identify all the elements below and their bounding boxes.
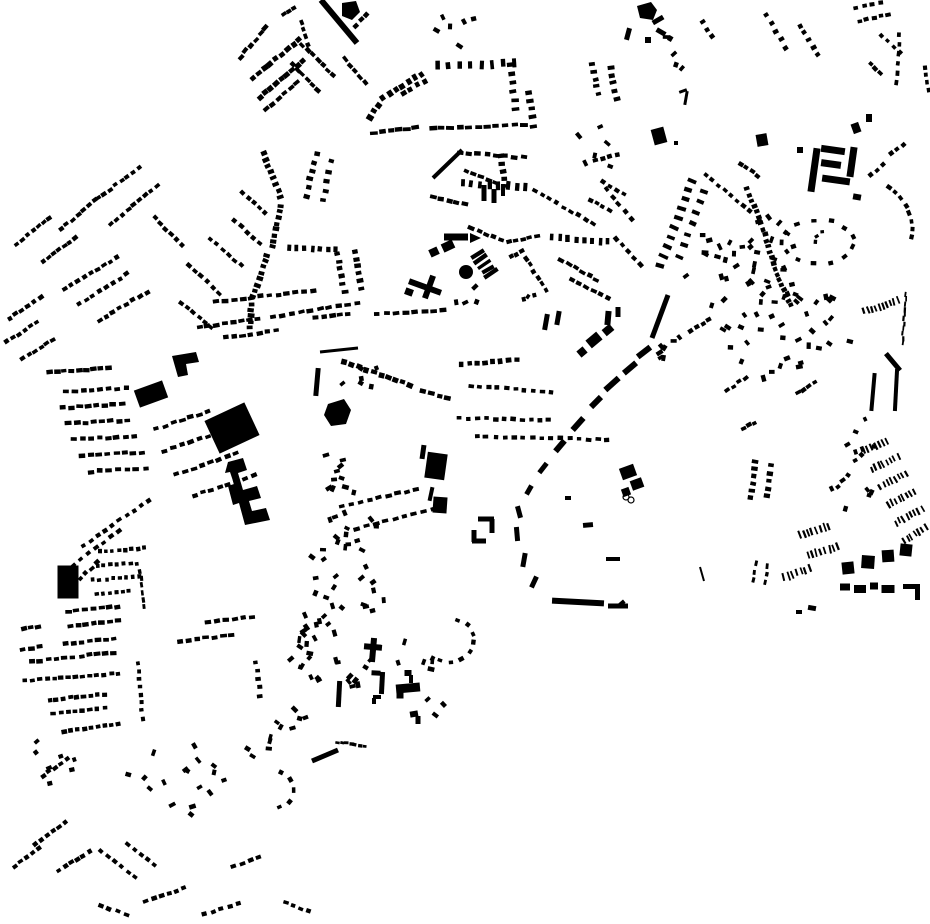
landmark-building — [882, 550, 895, 563]
landmark-building — [397, 692, 404, 699]
building — [819, 525, 823, 533]
building — [238, 223, 245, 230]
building — [201, 911, 207, 917]
building — [302, 715, 309, 721]
building — [684, 187, 693, 193]
building — [74, 278, 81, 285]
building — [909, 219, 913, 224]
building — [355, 271, 361, 276]
building — [131, 508, 137, 514]
building — [673, 62, 679, 68]
building — [621, 191, 627, 196]
building — [474, 361, 479, 366]
building — [80, 695, 86, 699]
building — [250, 235, 257, 242]
building — [498, 237, 504, 242]
building — [374, 312, 380, 316]
building — [358, 286, 364, 291]
building — [587, 197, 593, 203]
building — [823, 547, 827, 555]
building — [448, 24, 452, 30]
building — [497, 153, 504, 158]
building — [508, 71, 515, 76]
building — [246, 195, 252, 201]
building — [574, 237, 578, 243]
building — [49, 337, 56, 343]
building — [136, 661, 140, 665]
building — [600, 156, 606, 162]
building — [891, 44, 896, 50]
building — [199, 462, 206, 468]
building — [375, 495, 382, 501]
building — [548, 436, 553, 440]
building — [614, 187, 621, 193]
landmark-building — [444, 234, 468, 241]
building — [896, 296, 900, 304]
building — [124, 385, 129, 390]
building — [453, 200, 460, 206]
building — [557, 257, 565, 264]
building — [321, 613, 328, 619]
building — [85, 550, 91, 556]
building — [607, 65, 614, 70]
building — [111, 576, 115, 580]
building — [34, 624, 41, 629]
building — [353, 526, 360, 532]
building — [446, 198, 453, 204]
building — [746, 193, 752, 198]
building — [63, 390, 69, 394]
building — [119, 212, 125, 218]
building — [253, 282, 261, 288]
building — [137, 669, 141, 673]
building — [97, 468, 103, 473]
building — [783, 355, 790, 361]
building — [895, 70, 899, 76]
building — [760, 227, 766, 233]
building — [679, 65, 685, 72]
building — [227, 904, 233, 909]
building — [345, 678, 352, 685]
building — [100, 191, 107, 198]
building — [22, 327, 28, 333]
building — [196, 784, 203, 790]
building — [144, 289, 151, 295]
building — [31, 299, 37, 305]
building — [187, 439, 195, 446]
landmark-building — [622, 361, 638, 376]
building — [694, 324, 700, 330]
building — [736, 378, 742, 384]
building — [264, 163, 271, 169]
building — [79, 654, 85, 659]
building — [888, 300, 892, 306]
building — [239, 861, 246, 866]
building — [311, 160, 317, 166]
building — [743, 164, 749, 170]
building — [65, 675, 70, 679]
landmark-building — [636, 345, 652, 360]
building — [249, 303, 255, 307]
building — [43, 340, 50, 346]
landmark-building — [899, 543, 912, 556]
building — [886, 184, 893, 191]
building — [604, 140, 611, 147]
building — [628, 216, 635, 223]
building — [579, 269, 586, 275]
building — [569, 277, 576, 283]
building — [888, 150, 895, 157]
building — [379, 94, 386, 101]
building — [339, 380, 345, 386]
building — [892, 298, 896, 306]
building — [299, 42, 306, 49]
building — [336, 266, 342, 271]
building — [267, 169, 274, 175]
building — [310, 288, 317, 293]
building — [477, 174, 484, 179]
building — [71, 234, 78, 241]
building — [189, 803, 197, 809]
building — [10, 335, 16, 341]
building — [232, 450, 239, 455]
building — [722, 187, 728, 193]
building — [894, 520, 898, 527]
building — [153, 426, 159, 431]
building — [250, 472, 257, 478]
building — [68, 695, 73, 699]
building — [669, 224, 679, 232]
landmark-building — [854, 585, 866, 593]
building — [515, 183, 520, 191]
building — [115, 528, 122, 535]
building — [751, 267, 756, 274]
building — [514, 387, 519, 390]
landmark-building — [602, 324, 615, 337]
building — [763, 238, 769, 244]
building — [568, 436, 573, 440]
building — [352, 249, 358, 254]
building — [124, 575, 128, 579]
building — [309, 82, 315, 88]
building — [681, 196, 690, 203]
building — [471, 16, 477, 22]
landmark-building — [619, 464, 637, 480]
building — [123, 435, 129, 439]
building — [76, 301, 82, 307]
building — [89, 388, 94, 393]
building — [255, 855, 261, 860]
building — [105, 365, 112, 370]
landmark-building — [840, 584, 850, 591]
landmark-building — [808, 605, 817, 611]
building — [514, 357, 519, 361]
building — [347, 62, 354, 69]
building — [765, 563, 768, 569]
building — [703, 172, 709, 178]
building — [94, 592, 99, 596]
building — [605, 295, 612, 301]
building — [312, 635, 318, 642]
building — [36, 644, 42, 649]
building — [192, 493, 199, 499]
building — [190, 466, 197, 471]
building — [44, 832, 50, 838]
building — [784, 249, 790, 255]
landmark-building — [630, 477, 645, 491]
building — [667, 235, 676, 241]
building — [912, 509, 917, 516]
landmark-building — [585, 332, 602, 349]
building — [36, 659, 43, 664]
building — [863, 16, 869, 21]
building — [168, 231, 175, 238]
building — [798, 360, 804, 365]
building — [110, 280, 116, 286]
building — [430, 194, 437, 199]
building — [878, 0, 883, 5]
building — [196, 436, 203, 442]
building — [455, 42, 463, 49]
building — [363, 745, 367, 748]
building — [607, 164, 613, 170]
building — [142, 545, 146, 550]
building — [239, 334, 246, 338]
building — [325, 170, 332, 175]
building — [95, 637, 102, 642]
building — [267, 738, 272, 745]
building — [320, 548, 326, 552]
building — [276, 188, 282, 194]
building — [80, 207, 87, 214]
building — [754, 173, 761, 179]
building — [382, 518, 389, 523]
building — [765, 486, 772, 491]
building — [168, 802, 176, 809]
building — [424, 696, 431, 703]
landmark-building — [603, 376, 620, 393]
building — [411, 73, 418, 81]
building — [62, 641, 68, 646]
landmark-building — [501, 184, 505, 196]
building — [141, 716, 146, 721]
building — [61, 243, 68, 249]
building — [462, 300, 469, 306]
building — [810, 44, 817, 50]
building — [58, 675, 64, 679]
building — [768, 313, 775, 319]
building — [590, 238, 594, 244]
building — [97, 578, 102, 582]
building — [378, 372, 385, 379]
building — [747, 495, 753, 500]
building — [50, 828, 56, 834]
building — [546, 418, 551, 422]
building — [772, 29, 779, 35]
building — [119, 401, 126, 406]
building — [606, 238, 610, 244]
building — [272, 226, 279, 231]
building — [575, 132, 583, 140]
building — [108, 591, 112, 595]
building — [631, 255, 637, 261]
building — [353, 257, 360, 262]
building — [308, 553, 316, 560]
building — [130, 201, 137, 208]
landmark-building — [416, 716, 421, 724]
building — [477, 385, 482, 389]
building — [116, 305, 122, 311]
building — [89, 725, 94, 729]
landmark-building — [604, 311, 611, 325]
building — [520, 436, 525, 440]
building — [197, 325, 203, 330]
building — [205, 434, 211, 439]
building — [273, 328, 279, 332]
building — [795, 257, 801, 262]
landmark-building — [645, 37, 651, 43]
building — [216, 290, 222, 296]
building — [69, 767, 75, 772]
building — [82, 726, 88, 731]
building — [124, 419, 130, 423]
building — [797, 530, 802, 538]
building — [530, 124, 538, 129]
building — [272, 79, 280, 87]
building — [490, 359, 495, 365]
landmark-building — [490, 519, 495, 533]
building — [108, 259, 114, 265]
building — [896, 51, 900, 57]
building — [818, 548, 822, 555]
building — [540, 436, 544, 440]
building — [845, 472, 851, 478]
building — [443, 395, 451, 401]
building — [231, 217, 237, 223]
building — [609, 80, 617, 85]
building — [19, 647, 25, 652]
building — [682, 273, 689, 279]
building — [76, 404, 83, 408]
building — [88, 538, 94, 544]
building — [808, 327, 816, 334]
building — [404, 489, 411, 494]
building — [539, 280, 545, 286]
building — [595, 437, 601, 441]
irregular-building — [172, 352, 199, 377]
building — [83, 421, 89, 425]
building — [297, 636, 301, 643]
building — [82, 622, 89, 627]
building — [325, 68, 331, 74]
building — [136, 165, 142, 171]
building — [805, 37, 811, 43]
building — [414, 81, 420, 88]
building — [814, 548, 818, 557]
building — [902, 316, 905, 322]
building — [846, 339, 853, 345]
building — [880, 161, 886, 167]
building — [715, 183, 721, 189]
building — [662, 243, 672, 251]
building — [21, 626, 28, 632]
building — [220, 634, 227, 638]
building — [528, 261, 533, 267]
building — [142, 899, 149, 904]
building — [238, 318, 245, 323]
building — [709, 177, 715, 183]
building — [759, 291, 766, 298]
landmark-building — [884, 352, 902, 372]
landmark-building — [482, 185, 487, 201]
building — [402, 311, 409, 315]
building — [89, 566, 96, 572]
building — [252, 288, 258, 293]
building — [780, 335, 786, 340]
building — [339, 282, 346, 286]
building — [95, 724, 100, 729]
building — [898, 42, 902, 47]
building — [625, 248, 632, 255]
building — [103, 284, 110, 291]
building — [405, 78, 412, 86]
building — [79, 453, 86, 458]
building — [107, 187, 113, 193]
building — [114, 451, 120, 455]
building — [435, 61, 440, 70]
building — [173, 236, 180, 243]
building — [72, 674, 78, 679]
building — [530, 269, 536, 275]
building — [504, 386, 510, 391]
building — [128, 561, 133, 565]
building — [270, 314, 276, 319]
building — [535, 275, 541, 282]
building — [247, 308, 254, 313]
building — [925, 80, 929, 85]
building — [314, 86, 322, 93]
building — [288, 84, 295, 91]
building — [511, 98, 519, 102]
building — [329, 72, 336, 79]
building — [739, 245, 745, 249]
building — [774, 272, 780, 278]
building — [583, 217, 590, 224]
building — [525, 90, 532, 95]
building — [103, 638, 109, 642]
building — [58, 754, 64, 759]
building — [358, 744, 363, 748]
building — [771, 300, 777, 304]
building — [95, 707, 100, 712]
building — [776, 277, 782, 283]
building — [356, 278, 363, 284]
building — [769, 236, 775, 243]
building — [230, 320, 237, 325]
building — [81, 274, 88, 280]
building — [102, 403, 109, 408]
building — [815, 52, 821, 58]
building — [348, 502, 354, 506]
building — [197, 315, 203, 321]
building — [247, 857, 254, 863]
building — [765, 213, 772, 221]
building — [363, 563, 369, 569]
building — [507, 62, 514, 67]
building — [826, 340, 833, 347]
building — [38, 837, 45, 843]
building — [475, 416, 480, 420]
